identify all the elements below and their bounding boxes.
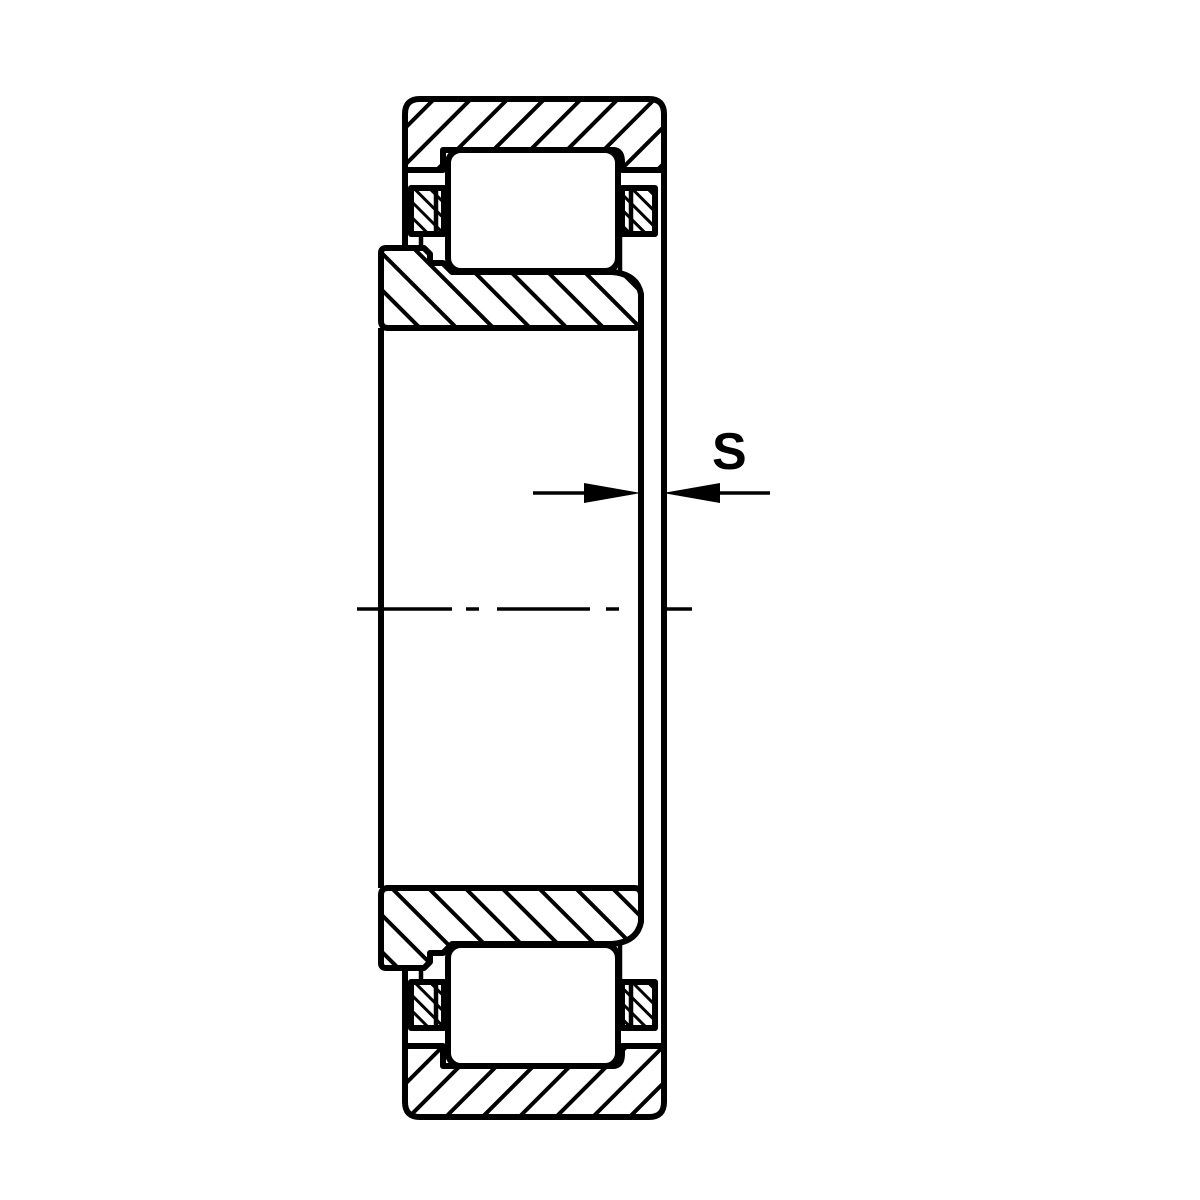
bearing-cross-section-drawing: S xyxy=(0,0,1200,1200)
dimension-label: S xyxy=(712,423,747,481)
cage-section-bottom-left xyxy=(411,982,444,1028)
cage-section-bottom-right xyxy=(622,982,655,1028)
cage-section-top-right xyxy=(622,188,655,234)
cage-section-top-left xyxy=(411,188,444,234)
cylindrical-roller-top xyxy=(448,150,618,271)
cylindrical-roller-bottom xyxy=(448,945,618,1066)
drawing-canvas: S xyxy=(0,0,1200,1200)
